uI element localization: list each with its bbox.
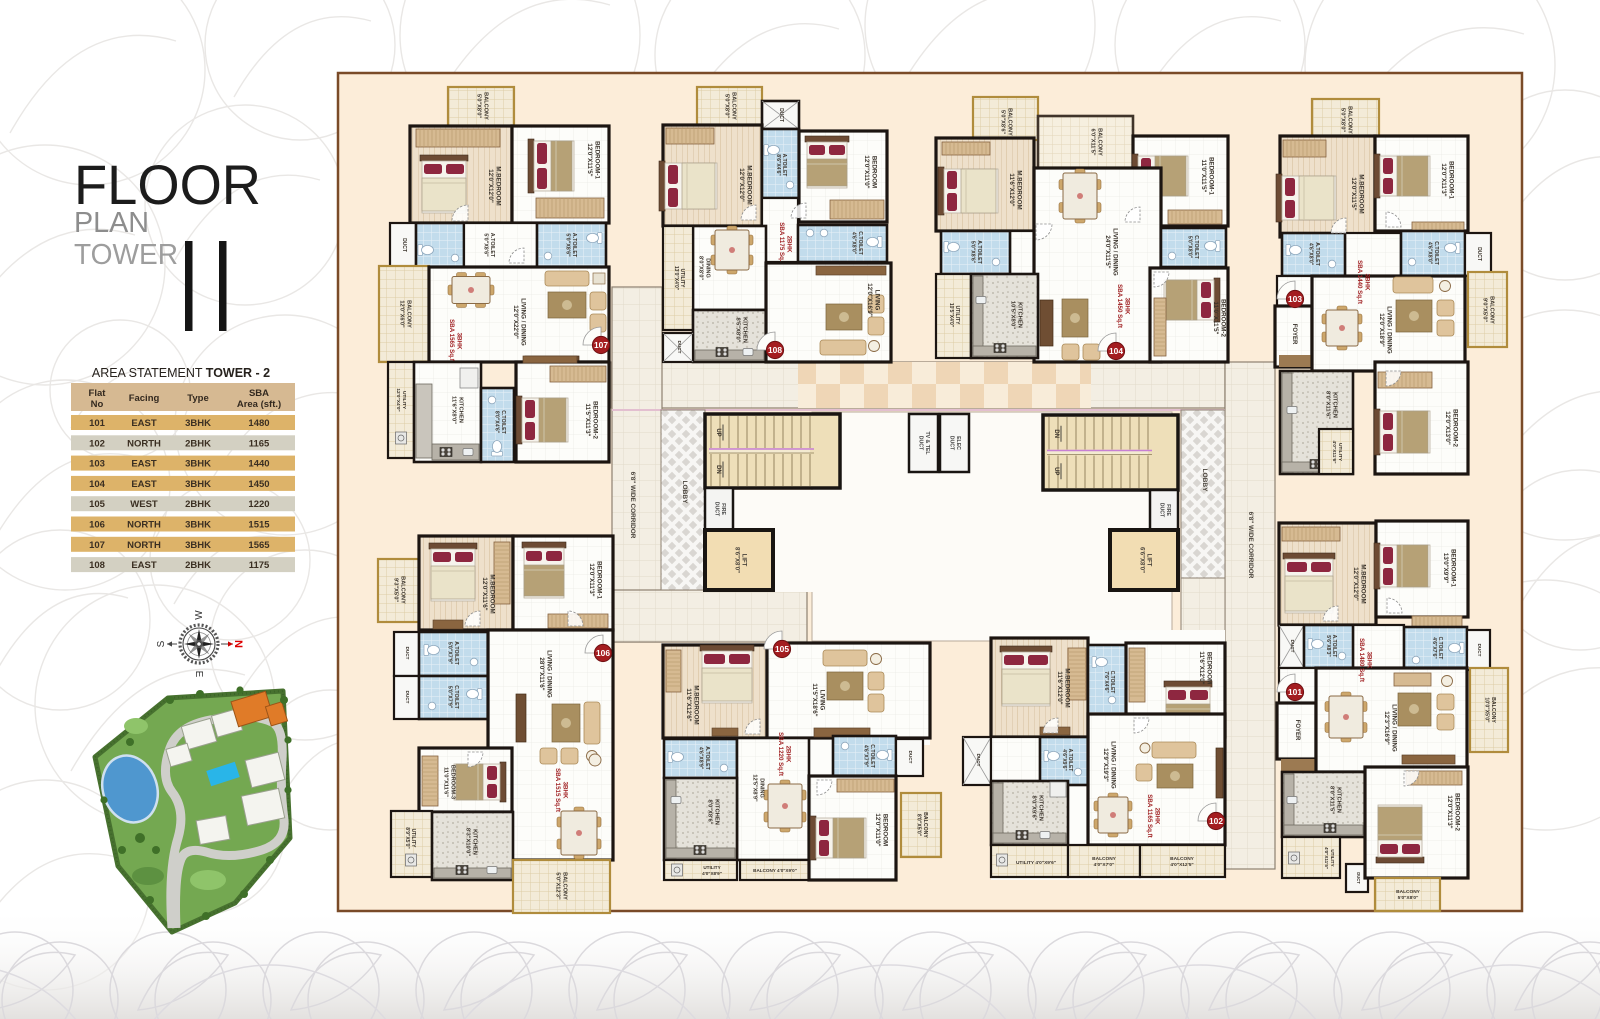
- svg-text:3BHK: 3BHK: [1124, 298, 1131, 315]
- svg-text:DUCT: DUCT: [1356, 872, 1361, 884]
- svg-text:12'0"X11'3": 12'0"X11'3": [1446, 795, 1453, 828]
- svg-text:M.BEDROOM: M.BEDROOM: [489, 574, 496, 613]
- svg-text:Flat: Flat: [89, 388, 107, 399]
- svg-text:EAST: EAST: [131, 418, 157, 429]
- svg-text:TOWER: TOWER: [74, 239, 178, 271]
- svg-text:A.TOILET: A.TOILET: [1314, 242, 1320, 266]
- svg-text:No: No: [91, 399, 104, 410]
- svg-text:12'0"X22'0": 12'0"X22'0": [512, 305, 519, 339]
- svg-text:104: 104: [1109, 346, 1123, 356]
- svg-text:8'5"X8'0": 8'5"X8'0": [734, 317, 740, 342]
- svg-text:5'0"X8'6": 5'0"X8'6": [565, 233, 571, 257]
- svg-text:12'0"X11'3": 12'0"X11'3": [588, 563, 595, 596]
- svg-text:12'0"X11'5": 12'0"X11'5": [1350, 177, 1357, 210]
- svg-text:BALCONY: BALCONY: [482, 92, 488, 120]
- svg-text:1220: 1220: [248, 499, 269, 510]
- svg-text:BEDROOM-2: BEDROOM-2: [1452, 409, 1459, 447]
- svg-text:M.BEDROOM: M.BEDROOM: [1360, 564, 1367, 603]
- svg-text:SBA 1175 Sq.ft: SBA 1175 Sq.ft: [778, 222, 785, 265]
- svg-text:8'0"X11'5": 8'0"X11'5": [1328, 786, 1334, 814]
- svg-text:12'0"X11'3": 12'0"X11'3": [1440, 163, 1447, 196]
- svg-text:M.BEDROOM: M.BEDROOM: [1016, 170, 1023, 209]
- svg-text:2BHK: 2BHK: [1154, 808, 1161, 825]
- svg-text:3BHK: 3BHK: [185, 540, 211, 551]
- svg-text:12'0"X12'0": 12'0"X12'0": [738, 168, 745, 202]
- svg-text:DN: DN: [1053, 429, 1059, 438]
- svg-text:5'6"X8'3": 5'6"X8'3": [1325, 635, 1331, 657]
- svg-text:3BHK: 3BHK: [562, 782, 569, 799]
- svg-text:PLAN: PLAN: [74, 207, 149, 239]
- svg-text:KITCHEN: KITCHEN: [1016, 302, 1022, 328]
- svg-text:A.TOILET: A.TOILET: [1067, 749, 1073, 772]
- svg-text:12'0"X4'0": 12'0"X4'0": [395, 388, 401, 411]
- svg-text:11'6"X12'0": 11'6"X12'0": [1008, 173, 1015, 206]
- svg-text:13'0"X9'9": 13'0"X9'9": [1442, 553, 1449, 583]
- svg-text:LIVING / DINING: LIVING / DINING: [1391, 704, 1398, 752]
- svg-text:DUCT: DUCT: [778, 108, 784, 122]
- svg-text:12'0"X18'9": 12'0"X18'9": [1378, 313, 1385, 347]
- svg-text:2BHK: 2BHK: [185, 438, 211, 449]
- svg-text:4'6"X8'0": 4'6"X8'0": [1427, 242, 1433, 265]
- svg-text:BEDROOM-1: BEDROOM-1: [1450, 549, 1457, 587]
- svg-text:1480: 1480: [248, 418, 269, 429]
- svg-text:12'0"X16'9": 12'0"X16'9": [866, 283, 873, 317]
- svg-text:5'0"X8'0": 5'0"X8'0": [476, 94, 482, 118]
- svg-text:KITCHEN: KITCHEN: [1331, 392, 1337, 418]
- svg-text:FIRE: FIRE: [1165, 504, 1171, 516]
- svg-text:5'0"X8'0": 5'0"X8'0": [1340, 108, 1346, 132]
- svg-text:WEST: WEST: [130, 499, 158, 510]
- svg-text:101: 101: [1288, 687, 1302, 697]
- svg-text:C.TOILET: C.TOILET: [1109, 671, 1115, 694]
- svg-text:BALCONY: BALCONY: [1096, 128, 1102, 156]
- svg-text:E: E: [193, 671, 204, 678]
- svg-text:M.BEDROOM: M.BEDROOM: [746, 165, 753, 204]
- svg-text:A.TOILET: A.TOILET: [1331, 635, 1337, 658]
- svg-text:6'8" WIDE CORRIDOR: 6'8" WIDE CORRIDOR: [1247, 512, 1254, 579]
- svg-text:BEDROOM-2: BEDROOM-2: [1454, 793, 1461, 831]
- svg-text:KITCHEN: KITCHEN: [457, 397, 463, 423]
- svg-text:LIVING / DINING: LIVING / DINING: [1112, 228, 1119, 276]
- svg-text:6'0"X11'5": 6'0"X11'5": [1090, 129, 1096, 156]
- svg-text:12'0"X11'6": 12'0"X11'6": [481, 577, 488, 610]
- svg-text:BEDROOM-1: BEDROOM-1: [1448, 161, 1455, 199]
- svg-text:11'6"X12'0": 11'6"X12'0": [1056, 671, 1063, 704]
- svg-text:DUCT: DUCT: [1476, 247, 1482, 261]
- svg-text:6'6"X8'0": 6'6"X8'0": [1138, 547, 1144, 573]
- svg-text:103: 103: [1288, 294, 1302, 304]
- svg-text:6'8" WIDE CORRIDOR: 6'8" WIDE CORRIDOR: [629, 472, 636, 539]
- svg-text:106: 106: [89, 520, 105, 531]
- svg-text:BEDROOM-2: BEDROOM-2: [592, 401, 599, 439]
- svg-text:A.TOILET: A.TOILET: [704, 746, 710, 770]
- svg-text:A.TOILET: A.TOILET: [489, 233, 495, 258]
- svg-text:12'9"X19'3": 12'9"X19'3": [1102, 748, 1109, 782]
- svg-text:DUCT: DUCT: [918, 436, 924, 451]
- svg-text:11'5"X18'6": 11'5"X18'6": [811, 683, 818, 716]
- svg-text:BEDROOM-3: BEDROOM-3: [449, 765, 455, 799]
- svg-text:Facing: Facing: [129, 393, 160, 404]
- svg-text:1440: 1440: [248, 459, 269, 470]
- svg-text:108: 108: [768, 345, 782, 355]
- svg-text:11'5"X11'3": 11'5"X11'3": [584, 404, 591, 437]
- svg-text:8'0"X5'0": 8'0"X5'0": [916, 814, 922, 837]
- svg-text:108: 108: [89, 560, 105, 571]
- svg-text:DUCT: DUCT: [677, 341, 682, 354]
- svg-text:AREA STATEMENT TOWER - 2: AREA STATEMENT TOWER - 2: [92, 366, 270, 380]
- svg-text:2BHK: 2BHK: [185, 560, 211, 571]
- svg-text:SBA 1165 Sq.ft: SBA 1165 Sq.ft: [1146, 794, 1153, 837]
- svg-text:105: 105: [775, 644, 789, 654]
- svg-text:7'6"X4'6": 7'6"X4'6": [1103, 671, 1109, 693]
- svg-text:BALCONY: BALCONY: [399, 576, 405, 604]
- svg-text:8'6"X4'6": 8'6"X4'6": [775, 154, 781, 176]
- svg-text:8'0"X4'6": 8'0"X4'6": [494, 411, 500, 434]
- svg-text:N: N: [232, 640, 244, 648]
- svg-text:SBA: SBA: [249, 388, 269, 399]
- svg-text:LIVING / DINING: LIVING / DINING: [1386, 306, 1393, 354]
- svg-text:FOYER: FOYER: [1291, 324, 1297, 345]
- svg-text:3BHK: 3BHK: [1366, 652, 1373, 669]
- svg-text:4'0"X8'9": 4'0"X8'9": [702, 871, 722, 876]
- svg-text:BALCONY: BALCONY: [1346, 106, 1352, 134]
- svg-text:M.BEDROOM: M.BEDROOM: [495, 166, 502, 205]
- svg-text:NORTH: NORTH: [127, 540, 161, 551]
- svg-text:11'6"X8'0": 11'6"X8'0": [450, 396, 456, 424]
- svg-text:DINING: DINING: [758, 778, 764, 798]
- svg-text:BALCONY: BALCONY: [405, 300, 411, 328]
- svg-text:8'3"X10'0": 8'3"X10'0": [464, 828, 470, 856]
- svg-text:11'0"X11'5": 11'0"X11'5": [1212, 302, 1219, 335]
- svg-text:4'6"X7'6": 4'6"X7'6": [1431, 637, 1437, 659]
- svg-text:DUCT: DUCT: [401, 238, 407, 252]
- svg-text:DUCT: DUCT: [714, 502, 720, 517]
- svg-text:4'0"X11'5": 4'0"X11'5": [1324, 847, 1329, 869]
- svg-text:DUCT: DUCT: [908, 751, 913, 764]
- svg-text:BEDROOM: BEDROOM: [882, 814, 889, 846]
- svg-text:8'0"X8'0": 8'0"X8'0": [698, 256, 704, 280]
- svg-text:BEDROOM-2: BEDROOM-2: [1220, 299, 1227, 337]
- svg-text:DUCT: DUCT: [1477, 644, 1482, 657]
- svg-text:UTILITY 4'0"X9'6": UTILITY 4'0"X9'6": [1016, 860, 1056, 866]
- svg-text:2BHK: 2BHK: [185, 499, 211, 510]
- svg-text:102: 102: [1209, 816, 1223, 826]
- svg-text:8'0"X9'6": 8'0"X9'6": [1030, 795, 1036, 820]
- svg-text:BEDROOM: BEDROOM: [1206, 652, 1213, 684]
- svg-text:SBA 1565 Sq.ft: SBA 1565 Sq.ft: [448, 319, 455, 363]
- svg-text:LOBBY: LOBBY: [1201, 468, 1208, 492]
- svg-text:5'0"X8'0": 5'0"X8'0": [724, 94, 730, 118]
- svg-text:C.TOILET: C.TOILET: [1437, 637, 1443, 660]
- svg-text:LIVING: LIVING: [819, 690, 826, 711]
- svg-text:LIVING / DINING: LIVING / DINING: [546, 650, 553, 698]
- svg-text:A.TOILET: A.TOILET: [976, 240, 982, 264]
- svg-text:2BHK: 2BHK: [785, 746, 792, 763]
- svg-text:M.BEDROOM: M.BEDROOM: [1358, 174, 1365, 213]
- svg-text:A.TOILET: A.TOILET: [453, 641, 459, 665]
- svg-text:5'0"X8'6": 5'0"X8'6": [970, 241, 976, 264]
- svg-text:LIVING / DINING: LIVING / DINING: [520, 298, 527, 346]
- svg-text:5'0"X7'9": 5'0"X7'9": [447, 642, 453, 665]
- svg-text:W: W: [194, 610, 205, 620]
- svg-text:101: 101: [89, 418, 106, 429]
- svg-text:C.TOILET: C.TOILET: [453, 685, 459, 709]
- svg-text:UP: UP: [715, 428, 721, 436]
- svg-text:104: 104: [89, 479, 106, 490]
- svg-text:12'0"X11'5": 12'0"X11'5": [586, 143, 593, 176]
- svg-text:1450: 1450: [248, 479, 269, 490]
- svg-text:BALCONY: BALCONY: [922, 812, 928, 838]
- svg-text:1165: 1165: [249, 438, 270, 449]
- svg-text:UP: UP: [1053, 467, 1059, 475]
- svg-text:KITCHEN: KITCHEN: [471, 829, 477, 855]
- svg-text:105: 105: [89, 499, 106, 510]
- svg-text:4'6"X7'9": 4'6"X7'9": [863, 745, 869, 768]
- svg-text:3BHK: 3BHK: [456, 333, 463, 350]
- svg-text:DUCT: DUCT: [405, 691, 410, 704]
- svg-text:102: 102: [89, 438, 105, 449]
- svg-text:4'6"X8'0": 4'6"X8'0": [851, 232, 857, 255]
- svg-text:DUCT: DUCT: [976, 754, 981, 767]
- svg-text:5'0"X8'6": 5'0"X8'6": [1000, 110, 1006, 134]
- svg-text:KITCHEN: KITCHEN: [1335, 787, 1341, 813]
- svg-text:5'0"X8'6": 5'0"X8'6": [483, 233, 489, 257]
- svg-text:DUCT: DUCT: [405, 647, 410, 660]
- svg-text:A.TOILET: A.TOILET: [781, 154, 787, 177]
- svg-text:4'0"X7'0": 4'0"X7'0": [1094, 862, 1115, 868]
- svg-text:BEDROOM-1: BEDROOM-1: [594, 141, 601, 179]
- svg-text:UTILITY: UTILITY: [410, 829, 416, 849]
- svg-text:8'9"X5'0": 8'9"X5'0": [404, 827, 410, 849]
- svg-text:DINING: DINING: [704, 258, 710, 278]
- svg-text:12'0"X13'0": 12'0"X13'0": [1444, 411, 1451, 445]
- svg-text:SBA 1515 Sq.ft: SBA 1515 Sq.ft: [554, 768, 561, 812]
- svg-text:8'0"X11'6": 8'0"X11'6": [1324, 391, 1330, 419]
- svg-text:C.TOILET: C.TOILET: [1193, 235, 1199, 259]
- svg-text:UTILITY: UTILITY: [1337, 443, 1343, 462]
- svg-text:M.BEDROOM: M.BEDROOM: [1064, 668, 1071, 707]
- svg-text:5'0"X8'0": 5'0"X8'0": [1398, 895, 1419, 901]
- svg-text:BALCONY 4'0"X9'0": BALCONY 4'0"X9'0": [753, 868, 797, 873]
- svg-text:107: 107: [89, 540, 105, 551]
- svg-text:3BHK: 3BHK: [185, 459, 211, 470]
- svg-text:8'0"X8'6": 8'0"X8'6": [706, 799, 712, 824]
- svg-text:4'0"X12'5": 4'0"X12'5": [1170, 862, 1193, 868]
- svg-text:NORTH: NORTH: [127, 520, 161, 531]
- svg-text:9'0"X5'0": 9'0"X5'0": [1482, 298, 1488, 322]
- svg-text:C.TOILET: C.TOILET: [857, 231, 863, 255]
- svg-text:FIRE: FIRE: [720, 503, 726, 515]
- svg-text:11'6"X12'6": 11'6"X12'6": [685, 688, 692, 721]
- svg-text:M.BEDROOM: M.BEDROOM: [693, 685, 700, 724]
- svg-text:UTILITY: UTILITY: [954, 306, 960, 326]
- svg-text:3BHK: 3BHK: [185, 418, 211, 429]
- svg-text:5'0"X7'9": 5'0"X7'9": [447, 686, 453, 709]
- svg-text:4'6"X8'9": 4'6"X8'9": [698, 747, 704, 770]
- svg-text:KITCHEN: KITCHEN: [741, 317, 747, 343]
- svg-text:1565: 1565: [248, 540, 270, 551]
- svg-text:DUCT: DUCT: [1290, 640, 1295, 653]
- svg-text:SBA 1480 Sq.ft: SBA 1480 Sq.ft: [1358, 638, 1365, 682]
- svg-text:LIVING / DINING: LIVING / DINING: [1110, 741, 1117, 789]
- svg-text:12'0"X11'0": 12'0"X11'0": [863, 155, 870, 188]
- svg-text:3BHK: 3BHK: [185, 520, 211, 531]
- svg-text:LIVING: LIVING: [874, 290, 881, 311]
- svg-text:SBA 1440 Sq.ft: SBA 1440 Sq.ft: [1356, 260, 1363, 304]
- svg-text:KITCHEN: KITCHEN: [1037, 795, 1043, 821]
- svg-text:C.TOILET: C.TOILET: [869, 744, 875, 768]
- svg-text:UTILITY: UTILITY: [1330, 849, 1335, 866]
- svg-text:BALCONY: BALCONY: [1488, 296, 1494, 324]
- svg-text:DUCT: DUCT: [949, 436, 955, 451]
- svg-text:2BHK: 2BHK: [786, 236, 793, 253]
- svg-text:10'5"X8'0": 10'5"X8'0": [1009, 301, 1015, 329]
- svg-text:BALCONY: BALCONY: [1006, 108, 1012, 136]
- svg-text:BALCONY: BALCONY: [1092, 856, 1117, 862]
- svg-text:LOBBY: LOBBY: [681, 480, 688, 504]
- svg-text:LIFT: LIFT: [741, 554, 747, 567]
- svg-text:10'0"X5'0": 10'0"X5'0": [1484, 697, 1490, 723]
- svg-text:FOYER: FOYER: [1294, 720, 1300, 741]
- svg-text:KITCHEN: KITCHEN: [713, 799, 719, 825]
- svg-text:28'0"X11'6": 28'0"X11'6": [538, 657, 545, 690]
- svg-text:1175: 1175: [249, 560, 270, 571]
- svg-text:S: S: [156, 640, 167, 647]
- svg-text:4'6"X8'0": 4'6"X8'0": [1308, 243, 1314, 266]
- svg-text:13'0"X4'0": 13'0"X4'0": [673, 266, 679, 291]
- svg-text:12'5"X8'9": 12'5"X8'9": [752, 774, 758, 802]
- svg-text:BEDROOM-1: BEDROOM-1: [1208, 157, 1215, 195]
- svg-text:BALCONY: BALCONY: [561, 872, 567, 900]
- svg-text:107: 107: [594, 340, 608, 350]
- svg-text:DUCT: DUCT: [1159, 503, 1165, 518]
- svg-text:5'0"X12'3": 5'0"X12'3": [555, 872, 561, 900]
- svg-text:BALCONY: BALCONY: [1170, 856, 1195, 862]
- svg-text:4'0"X11'6": 4'0"X11'6": [1331, 440, 1337, 463]
- svg-text:1515: 1515: [248, 520, 270, 531]
- svg-text:103: 103: [89, 459, 105, 470]
- svg-text:12'0"X12'0": 12'0"X12'0": [487, 169, 494, 203]
- svg-text:EAST: EAST: [131, 459, 157, 470]
- svg-text:BEDROOM-1: BEDROOM-1: [596, 561, 603, 599]
- svg-text:3BHK: 3BHK: [185, 479, 211, 490]
- svg-text:106: 106: [596, 648, 610, 658]
- svg-text:DN: DN: [715, 465, 721, 474]
- svg-text:BALCONY: BALCONY: [730, 92, 736, 120]
- svg-text:Area (sft.): Area (sft.): [237, 399, 281, 410]
- svg-text:24'0"X11'5": 24'0"X11'5": [1104, 235, 1111, 268]
- svg-text:UTILITY: UTILITY: [703, 865, 720, 870]
- svg-text:12'0"X11'0": 12'0"X11'0": [874, 813, 881, 846]
- svg-text:UTILITY: UTILITY: [401, 391, 407, 410]
- svg-text:SBA 1220 Sq.ft: SBA 1220 Sq.ft: [777, 732, 784, 776]
- svg-text:11'6"X12'0": 11'6"X12'0": [1198, 651, 1205, 684]
- svg-text:C.TOILET: C.TOILET: [500, 410, 506, 434]
- svg-text:LIFT: LIFT: [1146, 554, 1152, 567]
- svg-text:Type: Type: [187, 393, 208, 404]
- svg-text:4'6"X9'6": 4'6"X9'6": [1061, 749, 1067, 771]
- svg-text:SBA 1450 Sq.ft: SBA 1450 Sq.ft: [1116, 284, 1123, 328]
- svg-text:11'0"X11'6": 11'0"X11'6": [443, 767, 449, 797]
- svg-text:ELEC: ELEC: [955, 436, 961, 450]
- svg-text:NORTH: NORTH: [127, 438, 161, 449]
- svg-text:9'3"X5'0": 9'3"X5'0": [393, 578, 399, 602]
- svg-text:11'0"X11'5": 11'0"X11'5": [1200, 160, 1207, 193]
- svg-text:8'6"X8'0": 8'6"X8'0": [733, 547, 739, 573]
- svg-text:5'0"X8'0": 5'0"X8'0": [1187, 236, 1193, 259]
- svg-text:12'0"X12'0": 12'0"X12'0": [1352, 567, 1359, 601]
- svg-text:BEDROOM: BEDROOM: [871, 156, 878, 188]
- svg-text:UTILITY: UTILITY: [679, 269, 685, 289]
- svg-text:EAST: EAST: [131, 560, 157, 571]
- svg-text:A.TOILET: A.TOILET: [571, 233, 577, 258]
- svg-text:TV & TEL: TV & TEL: [924, 431, 930, 455]
- svg-text:12'3"X16'9": 12'3"X16'9": [1383, 711, 1390, 745]
- svg-text:10'5"X4'0": 10'5"X4'0": [948, 303, 954, 328]
- svg-text:BALCONY: BALCONY: [1490, 697, 1496, 723]
- svg-text:3BHK: 3BHK: [1364, 274, 1371, 291]
- svg-text:BALCONY: BALCONY: [1396, 889, 1421, 895]
- svg-text:12'0"X6'0": 12'0"X6'0": [399, 300, 405, 328]
- svg-text:EAST: EAST: [131, 479, 157, 490]
- svg-text:C.TOILET: C.TOILET: [1433, 241, 1439, 265]
